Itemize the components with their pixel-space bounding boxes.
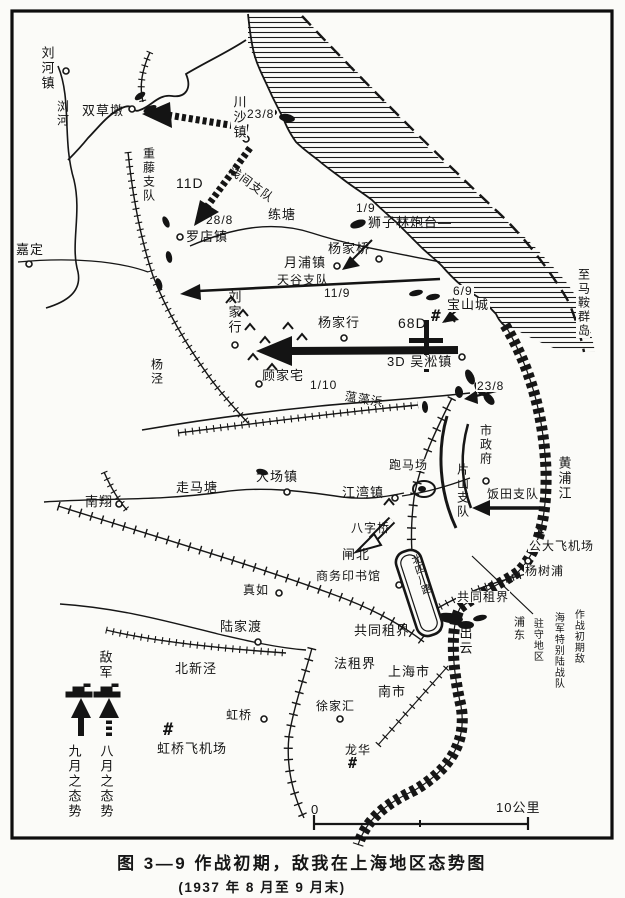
label-shanghai-city: 上海市 bbox=[388, 665, 430, 679]
label-huangpujiang: 黄浦江 bbox=[557, 456, 571, 501]
label-lujiadu: 陆家渡 bbox=[220, 620, 262, 634]
label-gujiazhai: 顾家宅 bbox=[262, 369, 304, 383]
label-liujiahang: 刘家行 bbox=[227, 290, 241, 335]
annotation-col-2: 海军特别陆战队 bbox=[552, 612, 562, 689]
label-jiangwanzhen: 江湾镇 bbox=[342, 486, 384, 500]
label-french-concession: 法租界 bbox=[334, 657, 376, 671]
fort-symbol-longhua: # bbox=[348, 756, 357, 772]
label-gongda-airfield: 公大飞机场 bbox=[528, 540, 595, 552]
label-wenzaobang: 蕰藻浜 bbox=[344, 390, 385, 409]
label-baziqiao: 八字桥 bbox=[351, 522, 390, 534]
label-xujiahui: 徐家汇 bbox=[316, 700, 355, 712]
label-nanxiang: 南翔 bbox=[85, 495, 113, 509]
label-luodianzhen: 罗店镇 bbox=[186, 230, 228, 244]
label-68d: 68D bbox=[398, 316, 427, 331]
label-11d: 11D bbox=[176, 176, 204, 191]
date-tiangu: 11/9 bbox=[324, 287, 350, 299]
fort-symbol-gongda: # bbox=[536, 525, 544, 540]
map-labels-layer: 刘河镇浏河双草墩川沙镇23/8重藤支队11D浅间支队练塘28/8罗店镇嘉定1/9… bbox=[0, 0, 625, 898]
date-luodian: 28/8 bbox=[206, 214, 233, 226]
label-pianshan-detachment: 片山支队 bbox=[456, 463, 468, 519]
label-baoshancheng: 宝山城 bbox=[446, 298, 490, 312]
label-shizhengfu: 市政府 bbox=[479, 424, 491, 466]
label-shangwu-press: 商务印书馆 bbox=[316, 570, 381, 582]
legend-august: 八月之态势 bbox=[99, 744, 113, 819]
label-iida-detachment: 饭田支队 bbox=[486, 488, 540, 500]
label-international-settlement-east: 共同租界 bbox=[456, 591, 510, 603]
label-zhi-maan-islands: 至马鞍群岛 bbox=[576, 268, 590, 338]
date-chuansha: 23/8 bbox=[246, 108, 275, 120]
scanned-map-page: 刘河镇浏河双草墩川沙镇23/8重藤支队11D浅间支队练塘28/8罗店镇嘉定1/9… bbox=[0, 0, 625, 898]
date-shizilin: 1/9 bbox=[356, 202, 376, 214]
date-baoshan: 6/9 bbox=[452, 285, 474, 297]
scale-ten-km: 10公里 bbox=[496, 801, 540, 815]
label-3d-wusongzhen: 3D 吴淞镇 bbox=[386, 355, 453, 369]
legend-september: 九月之态势 bbox=[67, 744, 81, 819]
label-chuanshazhen: 川沙镇 bbox=[231, 95, 247, 140]
label-shigefuji-detachment: 重藤支队 bbox=[142, 147, 154, 203]
label-hongqiao-airfield: 虹桥飞机场 bbox=[157, 742, 227, 756]
label-dachangzhen: 大场镇 bbox=[256, 470, 298, 484]
label-pudong: 浦东 bbox=[512, 616, 523, 642]
label-yangjiahang: 杨家行 bbox=[318, 316, 360, 330]
caption-subtitle: (1937 年 8 月至 9 月末) bbox=[178, 876, 345, 896]
label-yangjiaqiao: 杨家桥 bbox=[328, 242, 370, 256]
annotation-col-3: 驻守地区 bbox=[531, 618, 541, 662]
legend-enemy: 敌军 bbox=[98, 650, 112, 680]
label-liantang: 练塘 bbox=[268, 208, 296, 222]
date-gujiazhai: 1/10 bbox=[310, 379, 337, 391]
map-area: 刘河镇浏河双草墩川沙镇23/8重藤支队11D浅间支队练塘28/8罗店镇嘉定1/9… bbox=[0, 0, 625, 898]
label-liuhe-river: 浏河 bbox=[56, 100, 68, 128]
label-zhenru: 真如 bbox=[243, 584, 269, 596]
caption-title: 图 3—9 作战初期，敌我在上海地区态势图 bbox=[117, 849, 487, 874]
date-wusong: 23/8 bbox=[476, 380, 505, 392]
label-zoumatang: 走马塘 bbox=[176, 481, 218, 495]
label-liuhezhen: 刘河镇 bbox=[40, 46, 54, 91]
label-yangshupu: 杨树浦 bbox=[524, 565, 565, 577]
label-jiading: 嘉定 bbox=[16, 243, 44, 257]
label-yangjing: 杨泾 bbox=[150, 358, 162, 386]
scale-zero: 0 bbox=[311, 803, 319, 817]
label-shuangcaodun: 双草墩 bbox=[82, 104, 124, 118]
label-hongqiao: 虹桥 bbox=[226, 709, 252, 721]
fort-symbol-hongqiao: # bbox=[163, 722, 173, 740]
label-paomachang: 跑马场 bbox=[388, 459, 429, 471]
label-shizilin-fort: 狮子林炮台— bbox=[368, 216, 452, 230]
label-beixinjing: 北新泾 bbox=[175, 662, 217, 676]
label-tiangu-detachment: 天谷支队 bbox=[277, 274, 329, 286]
label-beisichuan-road: 北四川路 bbox=[409, 553, 432, 596]
label-zhabei: 闸北 bbox=[342, 548, 370, 562]
label-yuepuzhen: 月浦镇 bbox=[284, 256, 326, 270]
label-asama-detachment: 浅间支队 bbox=[227, 164, 276, 205]
label-nanshi: 南市 bbox=[378, 685, 406, 699]
label-izumo: 出云 bbox=[458, 626, 472, 656]
annotation-col-1: 作战初期敌 bbox=[572, 609, 582, 664]
label-international-settlement-west: 共同租界 bbox=[354, 624, 410, 638]
fort-symbol-baoshan: # bbox=[431, 308, 441, 325]
